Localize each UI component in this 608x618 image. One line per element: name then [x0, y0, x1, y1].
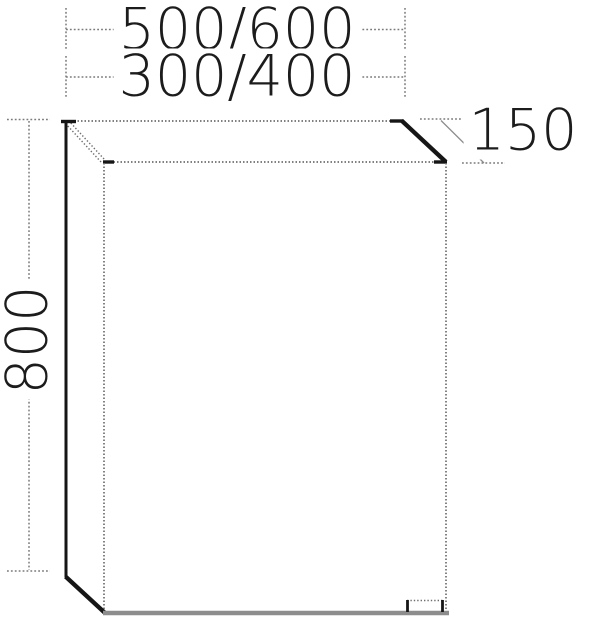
dim-depth-label: 150 [464, 103, 583, 160]
dim-height-label: 800 [0, 281, 57, 400]
cabinet-outline [66, 121, 450, 613]
door-top-edge-inner [66, 124, 102, 163]
cabinet-top-face-edges [61, 121, 446, 163]
cabinet-door-handle [407, 600, 443, 612]
top-right-depth-edge [402, 121, 447, 163]
door-top-edge-outer [69, 121, 105, 160]
dim-width-small-label: 300/400 [114, 49, 361, 106]
technical-drawing: 500/600 300/400 800 150 [0, 0, 608, 618]
bottom-left-depth-edge [66, 577, 105, 613]
